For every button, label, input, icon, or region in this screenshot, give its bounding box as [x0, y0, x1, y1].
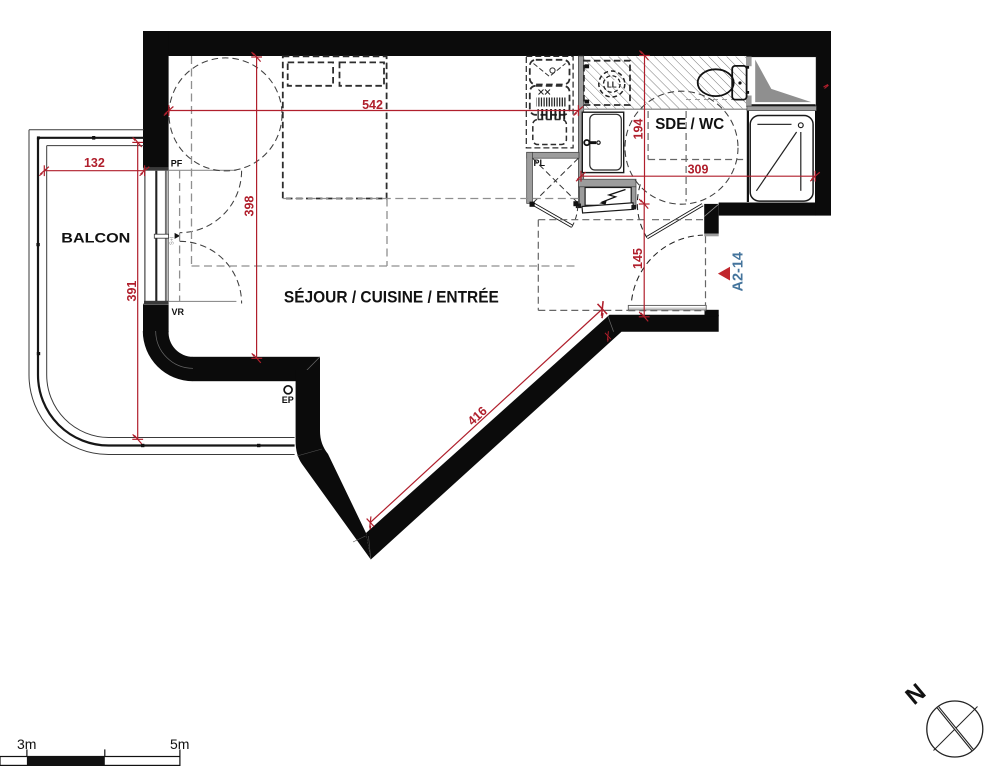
svg-text:SDE / WC: SDE / WC [655, 116, 724, 133]
svg-text:VR: VR [172, 307, 185, 317]
svg-text:398: 398 [243, 196, 257, 217]
svg-text:542: 542 [362, 98, 383, 112]
svg-text:194: 194 [631, 119, 645, 140]
svg-text:S+I: S+I [169, 236, 175, 245]
svg-text:309: 309 [688, 162, 709, 176]
svg-text:132: 132 [84, 156, 105, 170]
svg-text:PL: PL [534, 158, 546, 168]
svg-text:LL: LL [607, 80, 617, 89]
svg-text:145: 145 [631, 248, 645, 269]
svg-text:BALCON: BALCON [61, 230, 130, 246]
svg-text:EP: EP [282, 395, 294, 405]
svg-text:SÉJOUR / CUISINE / ENTRÉE: SÉJOUR / CUISINE / ENTRÉE [284, 288, 499, 307]
svg-text:PF: PF [171, 159, 183, 169]
svg-text:391: 391 [125, 281, 139, 302]
svg-text:A2-14: A2-14 [731, 252, 747, 292]
